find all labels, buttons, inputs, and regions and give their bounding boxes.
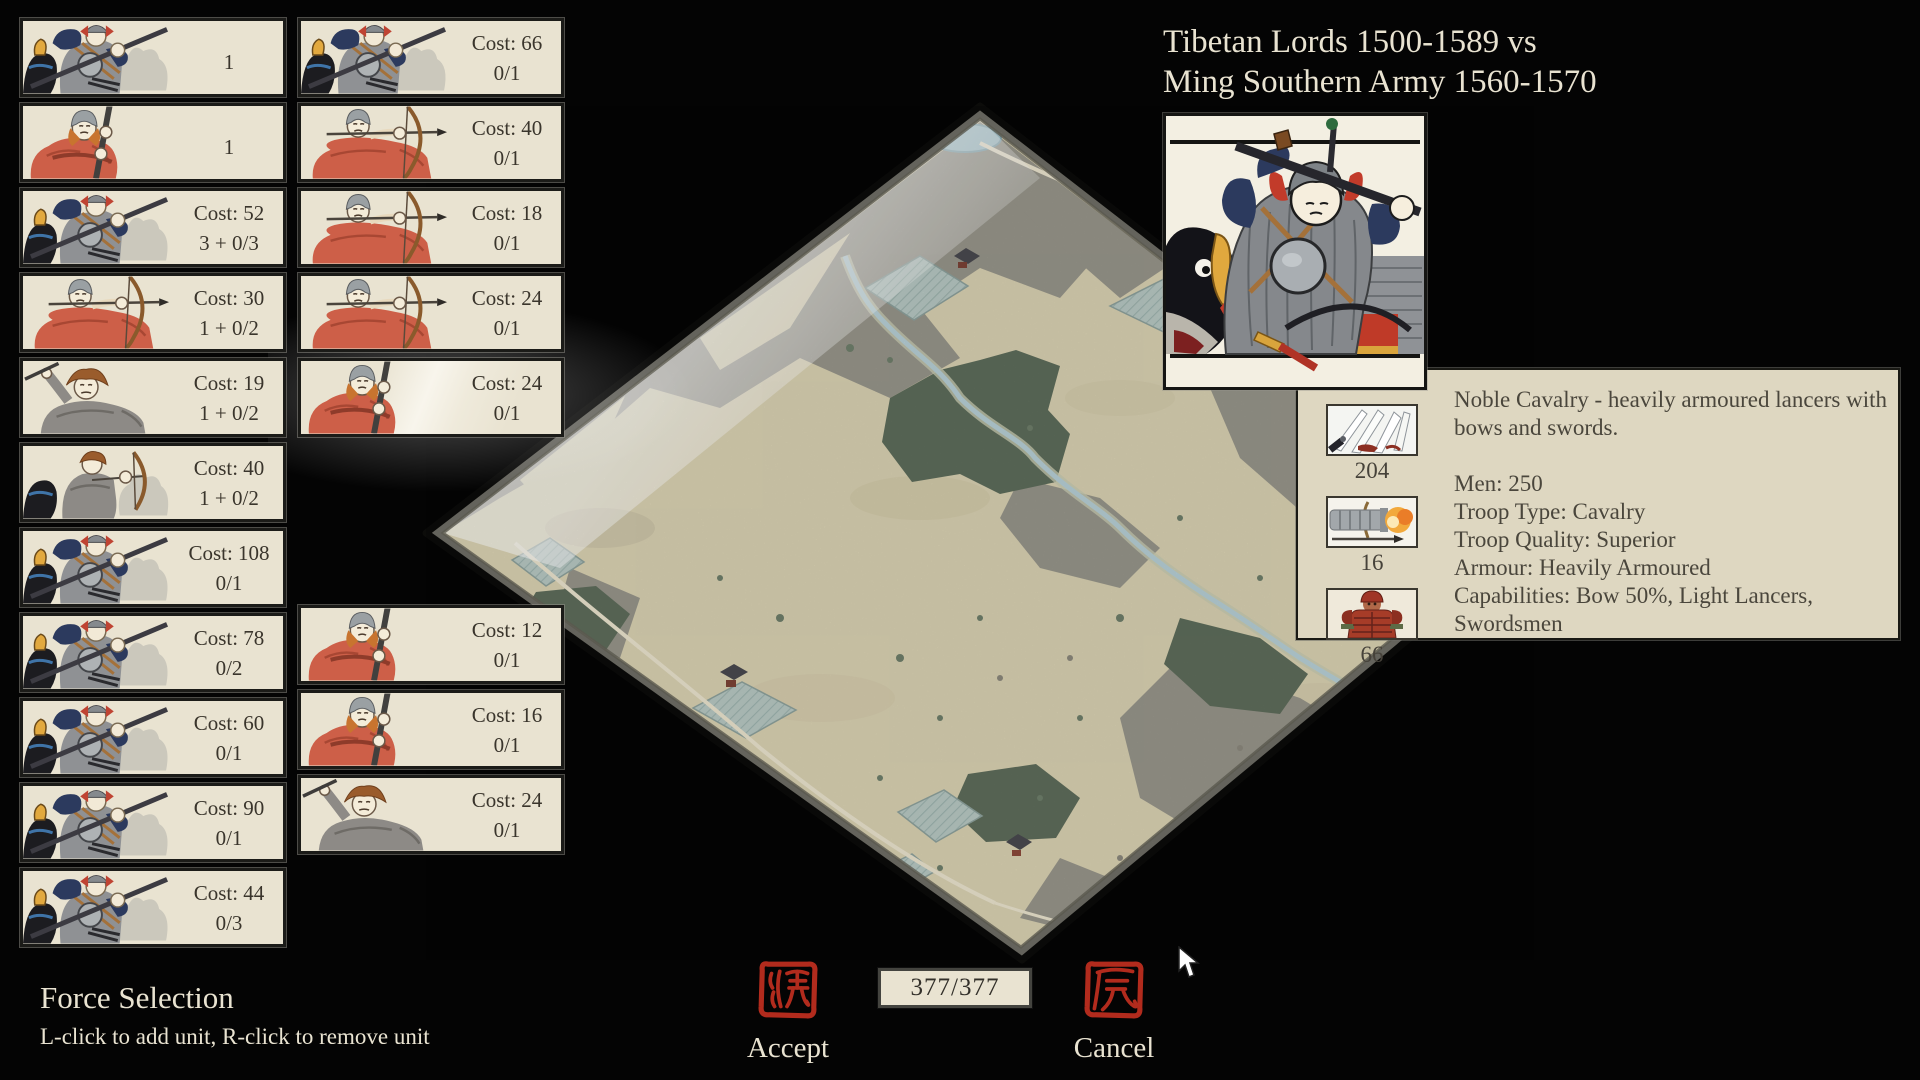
unit-card[interactable]: Cost: 523 + 0/3: [20, 188, 286, 267]
unit-card[interactable]: 1: [20, 18, 286, 97]
tooltip-stat-icons: 204 16: [1320, 404, 1424, 680]
unit-cost: Cost: 24: [472, 287, 543, 309]
unit-art: [301, 361, 449, 434]
unit-slots: 0/1: [494, 402, 521, 424]
unit-art: [23, 786, 171, 859]
unit-card[interactable]: Cost: 180/1: [298, 188, 564, 267]
unit-art: [23, 616, 171, 689]
unit-slots: 0/1: [494, 232, 521, 254]
unit-art: [23, 871, 171, 944]
cancel-button[interactable]: Cancel: [1062, 957, 1166, 1065]
unit-card[interactable]: Cost: 191 + 0/2: [20, 358, 286, 437]
points-counter: 377/377: [878, 968, 1032, 1008]
unit-portrait: [1163, 113, 1427, 390]
unit-art: [23, 531, 171, 604]
stat-men: Men: 250: [1454, 470, 1896, 498]
tooltip-text: Noble Cavalry - heavily armoured lancers…: [1454, 386, 1896, 638]
unit-slots: 1: [224, 51, 235, 73]
unit-art: [23, 276, 171, 349]
screen-hint: L-click to add unit, R-click to remove u…: [40, 1024, 430, 1050]
accept-label: Accept: [742, 1032, 834, 1065]
unit-cost: Cost: 12: [472, 619, 543, 641]
unit-cost: Cost: 40: [472, 117, 543, 139]
unit-card[interactable]: Cost: 660/1: [298, 18, 564, 97]
unit-cost: Cost: 44: [194, 882, 265, 904]
unit-slots: 0/1: [216, 742, 243, 764]
cannon-icon: [1326, 496, 1418, 548]
unit-art: [23, 701, 171, 774]
unit-cost: Cost: 16: [472, 704, 543, 726]
unit-cost: Cost: 108: [188, 542, 269, 564]
unit-art: [301, 693, 449, 766]
unit-card[interactable]: Cost: 400/1: [298, 103, 564, 182]
unit-slots: 0/1: [494, 147, 521, 169]
mouse-cursor: [1178, 946, 1204, 980]
unit-art: [301, 276, 449, 349]
unit-slots: 0/2: [216, 657, 243, 679]
unit-card[interactable]: Cost: 401 + 0/2: [20, 443, 286, 522]
unit-cost: Cost: 78: [194, 627, 265, 649]
unit-art: [301, 608, 449, 681]
unit-card[interactable]: Cost: 301 + 0/2: [20, 273, 286, 352]
accept-button[interactable]: Accept: [742, 957, 834, 1065]
unit-cost: Cost: 66: [472, 32, 543, 54]
cancel-seal-icon: [1082, 957, 1146, 1023]
unit-art: [23, 106, 171, 179]
unit-description: Noble Cavalry - heavily armoured lancers…: [1454, 386, 1896, 442]
unit-slots: 3 + 0/3: [199, 232, 259, 254]
force-selection-screen: 1 1 Cost: 523 + 0/3 Cost: 301 + 0/2 Cost…: [0, 0, 1920, 1080]
unit-card[interactable]: Cost: 1080/1: [20, 528, 286, 607]
unit-cost: Cost: 90: [194, 797, 265, 819]
accept-seal-icon: [756, 957, 820, 1023]
stat-capabilities: Capabilities: Bow 50%, Light Lancers, Sw…: [1454, 582, 1896, 638]
footer: Force Selection L-click to add unit, R-c…: [40, 980, 430, 1050]
blades-icon: [1326, 404, 1418, 456]
unit-art: [23, 191, 171, 264]
unit-list-right-top: Cost: 660/1 Cost: 400/1 Cost: 180/1 Cost…: [298, 18, 564, 437]
blades-value: 204: [1355, 458, 1390, 484]
unit-card[interactable]: 1: [20, 103, 286, 182]
unit-slots: 0/3: [216, 912, 243, 934]
cannon-value: 16: [1361, 550, 1384, 576]
unit-slots: 0/1: [494, 62, 521, 84]
unit-card[interactable]: Cost: 780/2: [20, 613, 286, 692]
unit-art: [301, 21, 449, 94]
unit-slots: 0/1: [494, 649, 521, 671]
unit-cost: Cost: 52: [194, 202, 265, 224]
unit-card-highlighted[interactable]: Cost: 240/1: [298, 358, 564, 437]
unit-list-left: 1 1 Cost: 523 + 0/3 Cost: 301 + 0/2 Cost…: [20, 18, 286, 947]
matchup-title: Tibetan Lords 1500-1589 vs Ming Southern…: [1163, 22, 1597, 102]
unit-slots: 1 + 0/2: [199, 317, 259, 339]
screen-title: Force Selection: [40, 980, 430, 1016]
unit-art: [23, 446, 171, 519]
unit-cost: Cost: 30: [194, 287, 265, 309]
unit-card[interactable]: Cost: 600/1: [20, 698, 286, 777]
unit-slots: 0/1: [494, 819, 521, 841]
unit-art: [301, 778, 449, 851]
unit-cost: Cost: 19: [194, 372, 265, 394]
unit-cost: Cost: 18: [472, 202, 543, 224]
matchup-title-line2: Ming Southern Army 1560-1570: [1163, 62, 1597, 102]
unit-card[interactable]: Cost: 120/1: [298, 605, 564, 684]
armour-icon: [1326, 588, 1418, 640]
stat-troop-quality: Troop Quality: Superior: [1454, 526, 1896, 554]
unit-art: [23, 361, 171, 434]
unit-slots: 0/1: [494, 734, 521, 756]
unit-card[interactable]: Cost: 900/1: [20, 783, 286, 862]
unit-slots: 0/1: [494, 317, 521, 339]
unit-slots: 1: [224, 136, 235, 158]
stat-armour: Armour: Heavily Armoured: [1454, 554, 1896, 582]
unit-slots: 1 + 0/2: [199, 402, 259, 424]
unit-slots: 0/1: [216, 827, 243, 849]
matchup-title-line1: Tibetan Lords 1500-1589 vs: [1163, 22, 1597, 62]
armour-value: 66: [1361, 642, 1384, 668]
unit-cost: Cost: 24: [472, 789, 543, 811]
stat-troop-type: Troop Type: Cavalry: [1454, 498, 1896, 526]
unit-card[interactable]: Cost: 240/1: [298, 775, 564, 854]
unit-card[interactable]: Cost: 240/1: [298, 273, 564, 352]
unit-cost: Cost: 60: [194, 712, 265, 734]
unit-card[interactable]: Cost: 440/3: [20, 868, 286, 947]
unit-tooltip-panel: 204 16: [1296, 368, 1900, 640]
unit-slots: 0/1: [216, 572, 243, 594]
unit-list-right-bottom: Cost: 120/1 Cost: 160/1 Cost: 240/1: [298, 605, 564, 854]
unit-cost: Cost: 40: [194, 457, 265, 479]
cancel-label: Cancel: [1062, 1032, 1166, 1065]
unit-cost: Cost: 24: [472, 372, 543, 394]
unit-slots: 1 + 0/2: [199, 487, 259, 509]
unit-card[interactable]: Cost: 160/1: [298, 690, 564, 769]
unit-art: [23, 21, 171, 94]
unit-art: [301, 106, 449, 179]
points-value: 377/377: [911, 974, 1000, 1002]
unit-art: [301, 191, 449, 264]
